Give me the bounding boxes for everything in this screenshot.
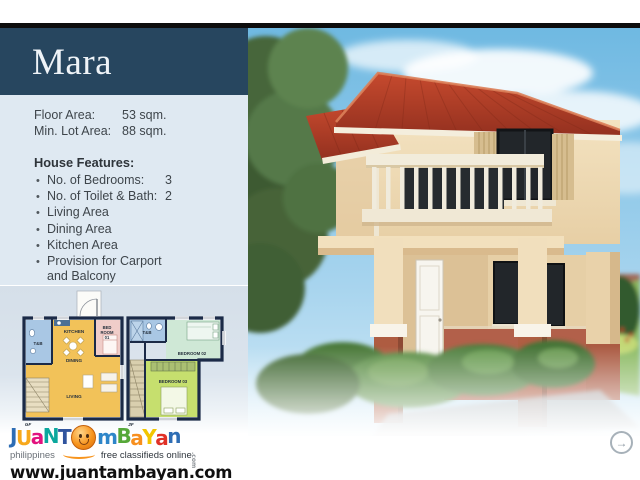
lot-area-label: Min. Lot Area: <box>34 124 122 140</box>
details-panel: Mara Floor Area: 53 sqm. Min. Lot Area: … <box>0 28 248 455</box>
svg-text:BEDROOM 03: BEDROOM 03 <box>159 379 188 384</box>
bullet-icon: • <box>36 189 47 205</box>
floor-area-row: Floor Area: 53 sqm. <box>34 108 248 124</box>
mascot-mouth <box>79 439 89 445</box>
floor-area-value: 53 sqm. <box>122 108 166 124</box>
swoosh-icon <box>63 450 95 459</box>
model-name: Mara <box>0 28 248 84</box>
logo-letter: a <box>155 425 167 451</box>
lot-area-value: 88 sqm. <box>122 124 166 140</box>
entry-door <box>77 291 101 318</box>
feature-kitchen-area: • Kitchen Area <box>36 238 248 254</box>
model-name-header: Mara <box>0 28 248 95</box>
lot-area-row: Min. Lot Area: 88 sqm. <box>34 124 248 140</box>
logo-letter: B <box>116 423 130 449</box>
logo-letter: a <box>31 424 43 450</box>
svg-text:01: 01 <box>105 335 110 340</box>
svg-text:T&B: T&B <box>33 341 42 346</box>
logo-letter: N <box>43 423 58 449</box>
feature-living-area: • Living Area <box>36 205 248 221</box>
tagline-philippines: philippines <box>10 450 55 461</box>
logo-wordmark: J U a N T m B a Y a n .com <box>10 423 225 451</box>
sf-stairs <box>130 360 145 417</box>
svg-text:DINING: DINING <box>66 358 83 363</box>
features-heading: House Features: <box>34 155 248 171</box>
floor-plans-panel: T&B KITCHEN BED ROOM 01 DINING LIVING GF <box>0 285 248 434</box>
mascot-icon <box>71 425 96 450</box>
svg-text:LIVING: LIVING <box>66 394 82 399</box>
logo-letter: Y <box>142 424 155 450</box>
bullet-icon: • <box>36 173 47 189</box>
ground-floor-plan: T&B KITCHEN BED ROOM 01 DINING LIVING GF <box>21 289 124 431</box>
features-list: • No. of Bedrooms: 3 • No. of Toilet & B… <box>34 173 248 284</box>
listing-flyer: Mara Floor Area: 53 sqm. Min. Lot Area: … <box>0 0 640 480</box>
svg-text:KITCHEN: KITCHEN <box>64 329 85 334</box>
bullet-icon: • <box>36 222 47 238</box>
logo-letter: U <box>16 425 31 451</box>
logo-letter: m <box>97 424 116 450</box>
logo-letter: T <box>58 424 70 450</box>
feature-carport-balcony: • Provision for Carport and Balcony <box>36 254 248 284</box>
mascot-eye <box>86 434 89 438</box>
gf-stairs <box>26 378 49 412</box>
feature-bedrooms: • No. of Bedrooms: 3 <box>36 173 248 189</box>
svg-text:BEDROOM 02: BEDROOM 02 <box>178 351 207 356</box>
next-arrow-button[interactable]: → <box>610 431 633 454</box>
specs-panel: Floor Area: 53 sqm. Min. Lot Area: 88 sq… <box>0 95 248 285</box>
feature-toilet-bath: • No. of Toilet & Bath: 2 <box>36 189 248 205</box>
second-floor-plan: T&B BEDROOM 02 BEDROOM 03 2F <box>125 289 227 431</box>
feature-dining-area: • Dining Area <box>36 222 248 238</box>
tagline-classifieds: free classifieds online <box>101 450 192 461</box>
logo-suffix: .com <box>180 452 206 458</box>
bullet-icon: • <box>36 254 47 284</box>
bullet-icon: • <box>36 205 47 221</box>
logo-letter: n <box>167 423 180 449</box>
logo-letter: a <box>130 425 142 451</box>
house-photo <box>248 28 640 455</box>
next-arrow-icon: → <box>616 437 628 449</box>
bottom-white <box>248 436 640 455</box>
juantambayan-logo: J U a N T m B a Y a n .com philippines f… <box>10 423 225 480</box>
svg-text:T&B: T&B <box>142 330 151 335</box>
mascot-eye <box>79 434 82 438</box>
floor-area-label: Floor Area: <box>34 108 122 124</box>
bullet-icon: • <box>36 238 47 254</box>
